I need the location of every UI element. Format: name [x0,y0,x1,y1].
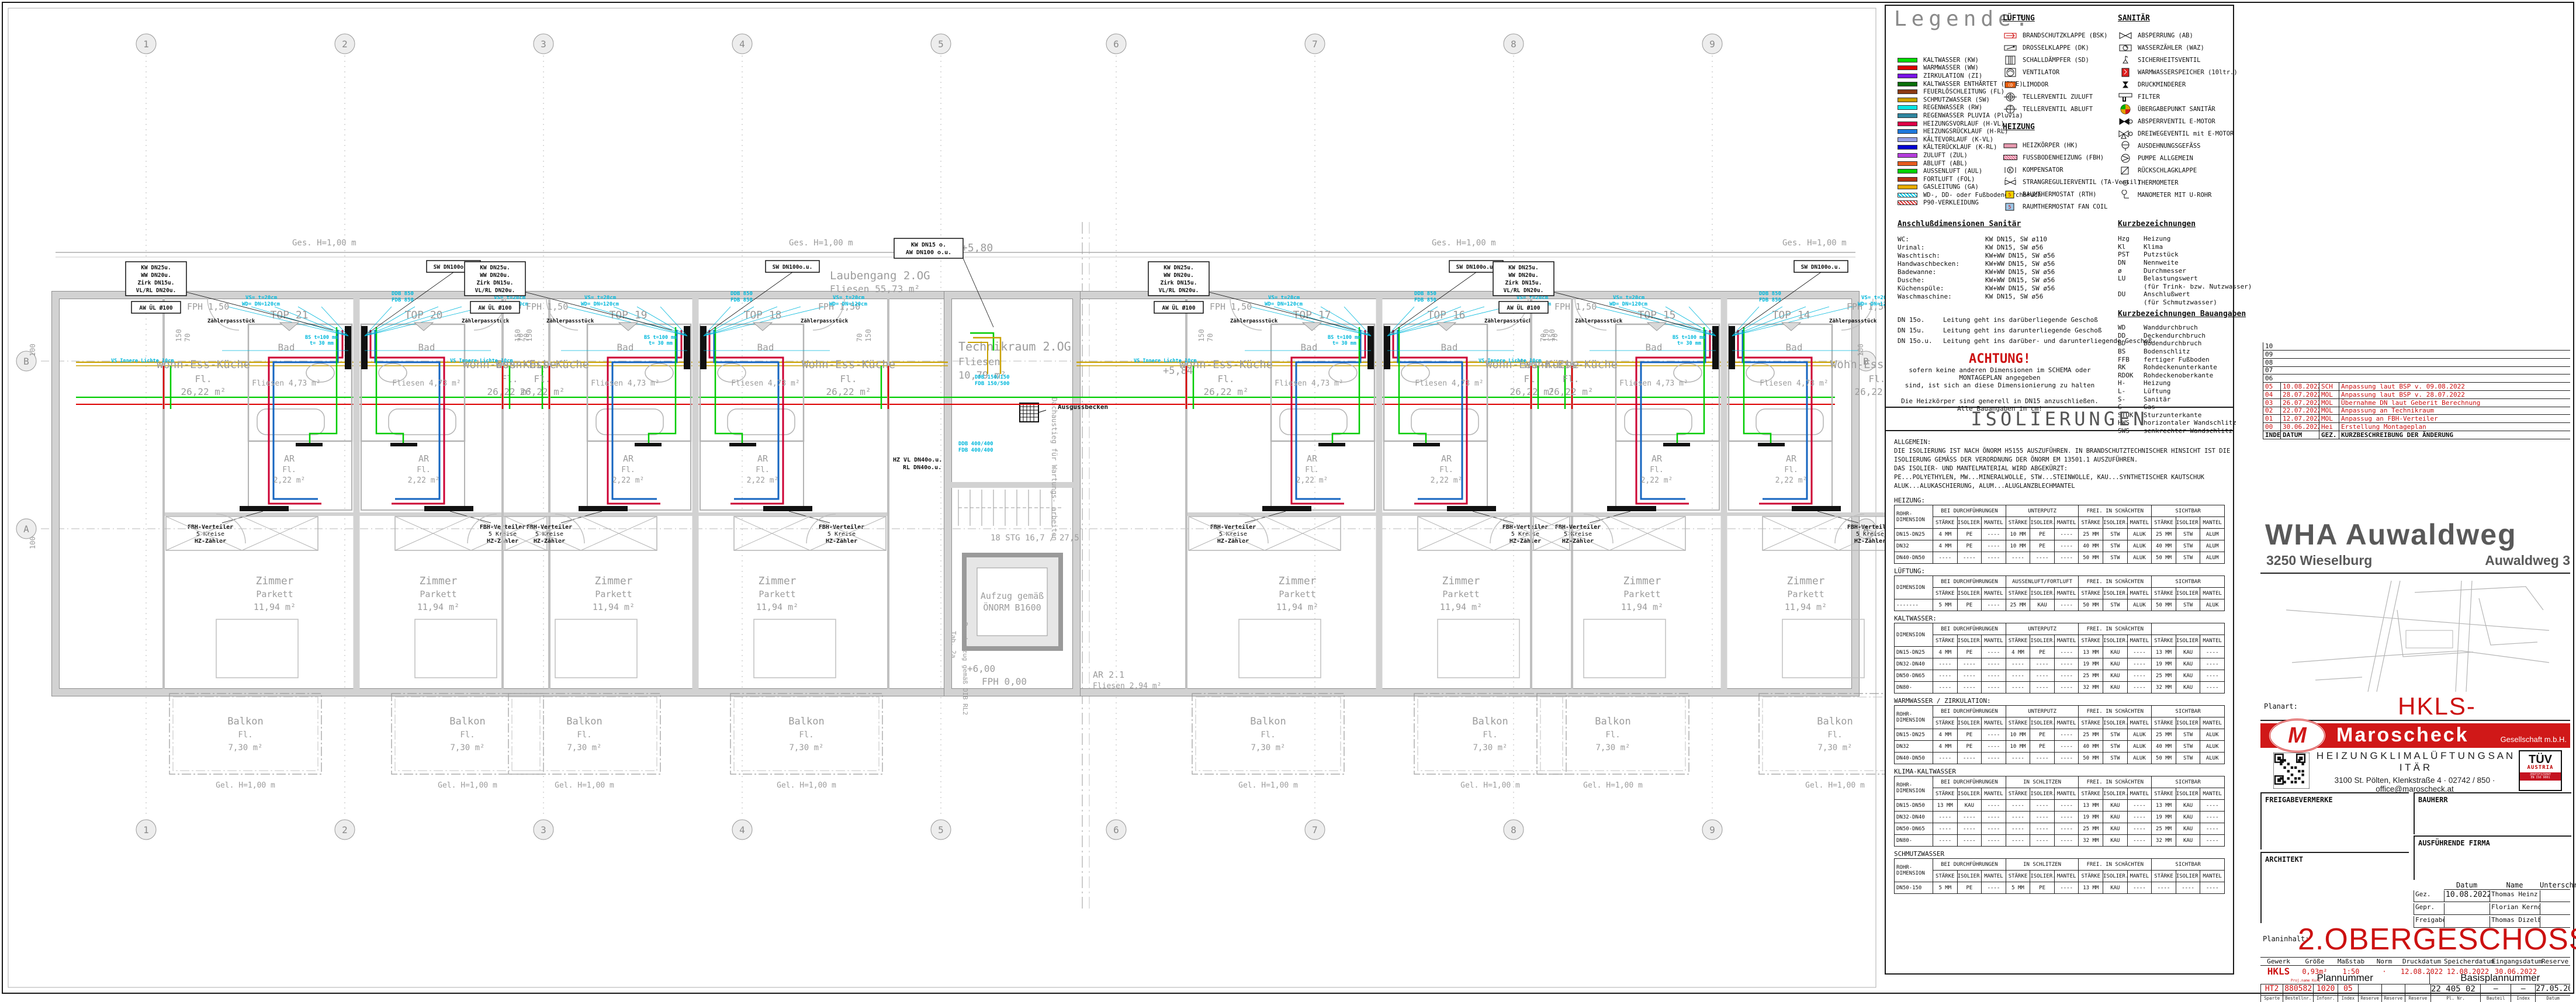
dim-150: 150 [175,329,183,342]
room-label-balkon: 7,30 m² [228,743,262,753]
fbh-verteiler-bar [1262,506,1311,511]
fbh-verteiler-bar [1607,506,1656,511]
abbrev-row: DUAnschlußwert [2118,290,2252,299]
iso-row-label: DN50-DN65 [1895,823,1933,835]
room-label-ar21: Fliesen 2,94 m² [1093,682,1161,691]
cyan-note: VS Innere Lichte 10cm [1479,358,1541,364]
qr-cell [2301,762,2304,765]
room-label-bad: Bad [278,342,295,353]
achtung-line2: sind, ist sich an diese Dimensionierung … [1892,382,2108,389]
room-label-ar: Fl. [1784,466,1798,474]
iso-allgemein-line: DIE ISOLIERUNG IST NACH ÖNORM H5155 AUSZ… [1894,447,2230,456]
cyan-note: WD= DN=120cm [829,301,868,307]
legend-panel: Legende: KALTWASSER (KW)WARMWASSER (WW)Z… [1885,5,2234,975]
revision-row: 0326.07.2022MOLÜbernahme DN laut Geberit… [2263,399,2570,407]
iso-col1-header: DIMENSION [1895,623,1933,647]
filter-icon [2119,93,2132,97]
legend-symbol-label: DRUCKMINDERER [2138,81,2186,88]
revision-table: 10090807060510.08.2022SCHAnpassung laut … [2263,342,2571,443]
legend-symbol-item: MANOMETER MIT U-ROHR [2118,189,2238,201]
iso-group-header: BEI DURCHFÜHRUNGEN [1933,859,2006,871]
iso-sub-header: MANTEL [2127,588,2152,599]
iso-group-header: IN SCHLITZEN [2006,776,2079,788]
plannummer-sub-label: Datum [2535,996,2570,1002]
legend-swatch-icon [1898,58,1917,63]
iso-sub-header: ISOLIER. [1957,635,1982,647]
check-valve-icon [2121,167,2128,174]
grid-number: 1 [143,39,149,50]
iso-sub-header: STÄRKE [1933,517,1958,529]
room-label-balkon: Balkon [1250,716,1286,727]
qr-cell [2287,777,2290,779]
iso-cell: 25 MM [2079,670,2103,682]
iso-cell: STW [2103,529,2128,540]
plannummer-cell: 05 [2338,984,2357,996]
iso-cell: ---- [2006,552,2030,564]
iso-cell: STW [2103,599,2128,611]
iso-cell: STW [2103,753,2128,764]
fixture-label: Waschmaschine: [1898,293,1985,300]
iso-cell: 25 MM [2152,823,2176,835]
abbrev-row: øDurchmesser [2118,266,2252,275]
iso-cell: ALUK [2127,729,2152,741]
signature-cell [2444,903,2490,915]
tuv-logo: TÜV AUSTRIA ZERTIFIZIERT EN ISO 9001 [2519,750,2562,791]
qr-cell [2294,777,2297,779]
iso-cell: PE [2030,647,2055,658]
dim-150: 150 [514,329,522,342]
plannummer-sub-label: Reserve [2358,996,2381,1002]
anschluss-row: Handwaschbecken:KW+WW DN15, SW ø56 [1898,259,2055,268]
shaft [1367,326,1374,369]
revision-cell: GEZ. [2319,431,2339,439]
room-label-ar: Fl. [756,466,769,474]
thermostat-fancoil-icon: 5 [2003,202,2018,212]
abbrev-row: HzgHeizung [2118,235,2252,243]
lift-label: Aufzug gemäß [981,591,1044,601]
iso-sub-header: MANTEL [2054,635,2079,647]
iso-row-label: DN80- [1895,682,1933,694]
iso-cell: PE [1957,599,1982,611]
abbrev-text: Belastungswert [2144,275,2198,282]
revision-cell: 05 [2263,383,2280,391]
revision-cell: 02 [2263,407,2280,415]
riser-box-text: WW DN20u. [480,272,510,279]
revision-cell: 04 [2263,391,2280,399]
iso-sub-header: MANTEL [2054,871,2079,882]
kurz-title: Kurzbezeichnungen [2118,220,2196,228]
iso-cell: 10 MM [2006,529,2030,540]
iso-cell: 25 MM [2152,729,2176,741]
qr-cell [2291,781,2293,783]
iso-row-label: DN40-DN50 [1895,753,1933,764]
dim-100: 100 [1857,344,1865,356]
riser-box-text: VL/RL DN20u. [475,287,515,294]
iso-cell: ALUK [2200,741,2225,753]
riser-box-text: VL/RL DN20u. [1504,287,1544,294]
iso-cell: ALUK [2127,529,2152,540]
revision-cell: 22.07.2022 [2280,407,2319,415]
abbrev-code: DD [2118,332,2144,339]
iso-cell: KAU [2030,599,2055,611]
throttle-damper-icon [2013,46,2014,47]
legend-swatch-icon [1898,122,1917,126]
legend-symbol-item: TELLERVENTIL ZULUFT [2003,91,2107,103]
grid-number: 9 [1709,39,1715,50]
iso-cell: ---- [2054,800,2079,812]
achtung-title: ACHTUNG! [1892,352,2108,366]
dimension-value: KW+WW DN15, SW ø56 [1985,260,2055,268]
iso-cell: 50 MM [2079,599,2103,611]
handover-point-icon [2121,109,2125,114]
iso-sub-header: MANTEL [1982,635,2006,647]
dimension-value: KW DN15, SW ø56 [1985,293,2043,300]
iso-cell: ---- [2030,658,2055,670]
room-label-wohn: 26,22 m² [520,386,565,397]
room-label-balkon: Fl. [460,730,475,740]
legend-symbol-label: HEIZKÖRPER (HK) [2023,142,2078,149]
plannummer-cell: – [2511,984,2535,996]
iso-sub-header: STÄRKE [2006,788,2030,800]
iso-cell: ---- [2054,835,2079,847]
iso-cell: ---- [2054,882,2079,894]
iso-cell: ---- [1982,647,2006,658]
floor-heating-icon [2003,152,2018,163]
room-label-balkon: Fl. [238,730,252,740]
room-label-balkon: 7,30 m² [450,743,484,753]
iso-sub-header: STÄRKE [2006,588,2030,599]
room-label-balkon: 7,30 m² [1473,743,1507,753]
freigabevermerke-label: FREIGABEVERMERKE [2265,796,2333,804]
iso-cell: 25 MM [2079,529,2103,540]
abbrev-row: BDBodendurchbruch [2118,339,2236,348]
legend-swatch-icon [1898,137,1917,142]
iso-cell: 50 MM [2152,753,2176,764]
iso-sub-header: ISOLIER. [1957,871,1982,882]
iso-sub-header: STÄRKE [2079,635,2103,647]
legend-sanitaer-title: SANITÄR [2118,14,2150,23]
room-label-zimmer: 11,94 m² [1440,602,1482,612]
tuv-text: TÜV [2520,754,2561,765]
revision-row: 0030.06.2022HeiErstellung Montageplan [2263,423,2570,431]
revision-cell: Anpassung an Technikraum [2339,407,2570,415]
gewerk-header: GewerkGrößeMaßstabNormDruckdatumSpeicher… [2260,957,2570,966]
iso-sub-header: MANTEL [2200,871,2225,882]
iso-allgemein-line: DAS ISOLIER- UND MANTELMATERIAL WIRD ABG… [1894,464,2230,473]
iso-cell: ALUK [2200,599,2225,611]
iso-cell: ---- [1957,823,1982,835]
abbrev-text: Bodenschlitz [2144,348,2190,355]
dim-gel: Gel. H=1,00 m [777,781,836,790]
iso-sub-header: STÄRKE [2152,717,2176,729]
radiator-icon [2003,140,2018,151]
ausfuehrende-firma-label: AUSFÜHRENDE FIRMA [2418,839,2490,847]
room-label-ar: AR [757,453,768,464]
iso-cell: 50 MM [2152,599,2176,611]
iso-group-header: UNTERPUTZ [2006,505,2079,517]
iso-cell: KAU [2176,658,2200,670]
aw-box-text: AW ÜL Ø100 [1162,305,1195,311]
hot-water-tank-icon [2122,68,2129,77]
iso-cell: 25 MM [2152,529,2176,540]
filter-icon [2123,97,2125,101]
iso-sub-header: STÄRKE [2152,871,2176,882]
qr-cell [2291,774,2293,776]
iso-cell: ---- [1957,670,1982,682]
room-label-wohn: Wohn-Ess-Küche [802,358,895,371]
isolierungen-allgemein: ALLGEMEIN:DIE ISOLIERUNG IST NACH ÖNORM … [1894,438,2230,491]
fixture-label: Urinal: [1898,244,1985,251]
architekt-label: ARCHITEKT [2265,855,2303,864]
iso-cell: STW [2176,741,2200,753]
iso-cell: ALUK [2127,599,2152,611]
iso-cell: 25 MM [2006,599,2030,611]
legend-color-label: ABLUFT (ABL) [1923,160,1968,167]
iso-cell: 40 MM [2079,540,2103,552]
iso-cell: ---- [2030,812,2055,823]
iso-cell: KAU [2176,835,2200,847]
abbrev-code: BD [2118,339,2144,347]
iso-cell: ---- [2054,682,2079,694]
laubengang-label: Laubengang 2.OG [830,269,930,282]
pressure-reducer-icon [2123,82,2128,88]
iso-cell: ---- [2006,753,2030,764]
zaehler-note: Zählerpassstück [1575,318,1623,324]
iso-cell: ---- [1982,540,2006,552]
zaehler-note: Zählerpassstück [1829,318,1877,324]
tuv-austria: AUSTRIA [2520,765,2561,771]
level-mark: +6,00 [967,663,995,674]
abbrev-row: H-Heizung [2118,379,2236,387]
iso-sub-header: MANTEL [1982,588,2006,599]
dimension-value: KW+WW DN15, SW ø56 [1985,252,2055,259]
room-label-zimmer: Parkett [256,589,293,599]
legend-symbol-label: FUSSBODENHEIZUNG (FBH) [2023,154,2104,161]
abbrev-text: Durchmesser [2144,267,2186,275]
cyan-note: DDB 850 [730,291,753,297]
legend-swatch-icon [1898,82,1917,86]
gewerk-col-header: Maßstab [2333,957,2369,966]
iso-row-label: DN80- [1895,835,1933,847]
aw-box-text: AW ÜL Ø100 [139,305,172,311]
silencer-icon [2003,55,2018,65]
iso-cell: 4 MM [1933,647,1958,658]
dn-note-row: DN 15o.u.Leitung geht ins darüber- und d… [1898,335,2152,346]
abbrev-row: LUBelastungswert [2118,275,2252,283]
fixture-label: Handwaschbecken: [1898,260,1985,268]
legend-color-label: FEUERLÖSCHLEITUNG (FL) [1923,88,2004,95]
throttle-damper-icon [2003,43,2018,53]
plannummer-tag: Proj.name Kurz [2291,979,2321,983]
signature-cell: Thomas Heinz [2490,890,2540,902]
isolierungen-header: ISOLIERUNGEN [1886,407,2233,431]
project-title: WHA Auwaldweg [2265,518,2565,552]
cyan-note: VS Innere Lichte 10cm [111,358,174,364]
iso-cell: 13 MM [2079,800,2103,812]
room-label-balkon: 7,30 m² [1595,743,1630,753]
company-banner: M Maroscheck Gesellschaft m.b.H. [2260,723,2570,748]
room-label-balkon: Balkon [449,716,485,727]
iso-sub-header: STÄRKE [2079,717,2103,729]
iso-sub-header: MANTEL [2200,788,2225,800]
iso-sub-header: ISOLIER. [2103,588,2128,599]
room-label-zimmer: Zimmer [1442,575,1480,587]
legend-symbol-label: LIMODOR [2023,81,2048,88]
iso-cell: 10 MM [2006,729,2030,741]
iso-cell: ---- [2054,552,2079,564]
iso-cell: ---- [2006,658,2030,670]
revision-cell: Hei [2319,423,2339,431]
room-label-ar: AR [1307,453,1318,464]
iso-cell: 4 MM [1933,540,1958,552]
dim-gel: Gel. H=1,00 m [1238,781,1298,790]
revision-cell: 28.07.2022 [2280,391,2319,399]
iso-cell: ---- [2054,670,2079,682]
iso-sub-header: ISOLIER. [2176,588,2200,599]
room-label-ar: 2,22 m² [1296,476,1328,485]
dim-70: 70 [183,334,192,342]
cyan-note: BS t=100 mm [644,335,677,341]
isolierungen-title: ISOLIERUNGEN [1971,408,2148,430]
revision-cell: MOL [2319,407,2339,415]
plan-text: K [2009,168,2012,173]
handover-point-icon [2118,104,2133,115]
plannummer-sub-label: Infonr. [2313,996,2338,1002]
dim-100: 100 [29,344,37,356]
iso-sub-header: STÄRKE [2079,871,2103,882]
iso-cell: KAU [2103,823,2128,835]
legend-color-label: SCHMUTZWASSER (SW) [1923,96,1990,103]
dimension-value: KW+WW DN15, SW ø56 [1985,268,2055,276]
fixture-label: Küchenspüle: [1898,285,1985,292]
legend-swatch-icon [1898,153,1917,158]
iso-sub-header: STÄRKE [2006,635,2030,647]
room-label-zimmer: Parkett [595,589,632,599]
iso-sub-header: MANTEL [1982,788,2006,800]
planinhalt-title: 2.OBERGESCHOSS [2298,922,2572,957]
iso-table-title: KALTWASSER: [1894,615,2225,622]
revision-cell: Übernahme DN laut Geberit Berechnung [2339,399,2570,407]
dimension-value: KW+WW DN15, SW ø56 [1985,276,2055,284]
kurz-list: HzgHeizungKlKlimaPSTPutzstückDNNennweite… [2118,235,2252,306]
aw-box-text: AW ÜL Ø100 [478,305,511,311]
room-label-wohn: Fl. [1869,373,1886,384]
plannummer-values: HT288058210200522_405_02_EP––27.05.2022 [2260,984,2570,996]
riser-box-text: KW DN25u. [141,265,171,271]
abbrev-code: FFB [2118,356,2144,363]
iso-cell: ---- [1933,835,1958,847]
site-plan-sketch [2280,575,2549,695]
iso-cell: ---- [2054,753,2079,764]
room-label-ar: Fl. [621,466,635,474]
iso-cell: KAU [2176,812,2200,823]
iso-cell: ---- [1933,812,1958,823]
motor-valve-icon [2118,116,2133,127]
room-label-ar: AR [418,453,430,464]
iso-group-header: SICHTBAR [2152,859,2225,871]
room-label-balkon: 7,30 m² [1817,743,1852,753]
room-label-wohn: 26,22 m² [826,386,871,397]
iso-sub-header: MANTEL [1982,871,2006,882]
cyan-note: FDB 400/400 [958,448,993,453]
iso-col1-header: ROHR-DIMENSION [1895,859,1933,882]
iso-cell: KAU [2103,800,2128,812]
revision-cell: Anpassung laut BSP v. 28.07.2022 [2339,391,2570,399]
cyan-note: BS t=100 mm [305,335,338,341]
room-label-ar: AR [1441,453,1452,464]
fbh-verteiler-bar [1792,506,1841,511]
iso-cell: ---- [2200,647,2225,658]
room-label-ar: Fl. [282,466,296,474]
iso-cell: ALUM [2200,529,2225,540]
legend-color-label: ZIRKULATION (ZI) [1923,72,1982,79]
iso-cell: 19 MM [2079,812,2103,823]
room-label-balkon: 7,30 m² [789,743,823,753]
legend-symbol-item: BRANDSCHUTZKLAPPE (BSK) [2003,29,2107,41]
iso-sub-header: MANTEL [2200,588,2225,599]
iso-cell: KAU [2103,670,2128,682]
revision-row: 0510.08.2022SCHAnpassung laut BSP v. 09.… [2263,383,2570,391]
handover-point-icon [2125,105,2130,109]
grid-number: 2 [342,39,348,50]
iso-cell: KAU [2103,682,2128,694]
plannummer-block: PlannummerBasisplannummerProj.name KurzH… [2260,972,2570,1002]
grid-number: 3 [541,824,546,835]
dim-150: 150 [864,329,872,342]
qr-cell [2287,762,2290,765]
iso-sub-header: ISOLIER. [2176,788,2200,800]
revision-cell: INDEX [2263,431,2280,439]
site-sketch-line [2368,581,2391,692]
iso-sub-header: MANTEL [2127,517,2152,529]
iso-group-header: UNTERPUTZ [2006,623,2079,635]
iso-table: DIMENSIONBEI DURCHFÜHRUNGENUNTERPUTZFREI… [1894,623,2225,694]
legend-lueftung-title: LÜFTUNG [2003,14,2035,23]
plannummer-sub-label: Sparte [2260,996,2283,1002]
iso-sub-header: STÄRKE [1933,588,1958,599]
legend-color-label: REGENWASSER (RW) [1923,104,1982,111]
room-label-bad: Fliesen 4,73 m² [392,379,461,388]
grid-number: 1 [143,824,149,835]
plannummer-sub-label: Bauteil [2480,996,2511,1002]
room-label-bad: Fliesen 4,73 m² [1275,379,1343,388]
site-sketch-line [2292,651,2549,663]
site-sketch-line [2377,581,2400,692]
legend-symbol-item: WARMWASSERSPEICHER (10ltr.) [2118,66,2238,78]
planart-label: Planart: [2264,702,2298,710]
company-suffix: Gesellschaft m.b.H. [2501,735,2567,744]
iso-cell: ---- [1957,753,1982,764]
legend-color-label: GASLEITUNG (GA) [1923,183,1979,190]
iso-col1-header: DIMENSION [1895,576,1933,599]
legend-symbol-label: ABSPERRVENTIL E-MOTOR [2138,118,2215,125]
sw-box-text: SW DN100o.u. [773,264,813,271]
iso-cell: KAU [2176,800,2200,812]
dim-gel: Gel. H=1,00 m [438,781,497,790]
legend-symbol-label: ABSPERRUNG (AB) [2138,32,2193,39]
plannummer-cell [2405,984,2430,996]
abbrev-text: Nennweite [2144,259,2179,266]
plan-text: (D [2008,83,2013,88]
revision-row: 0428.07.2022MOLAnpassung laut BSP v. 28.… [2263,391,2570,399]
iso-row-label: DN32 [1895,741,1933,753]
iso-cell: ---- [1982,882,2006,894]
iso-cell: 25 MM [2079,823,2103,835]
room-label-zimmer: Parkett [1623,589,1660,599]
cyan-note: t= 30 mm [1677,341,1701,346]
revision-cell: MOL [2319,415,2339,423]
plannummer-sub-label: Index [2511,996,2535,1002]
